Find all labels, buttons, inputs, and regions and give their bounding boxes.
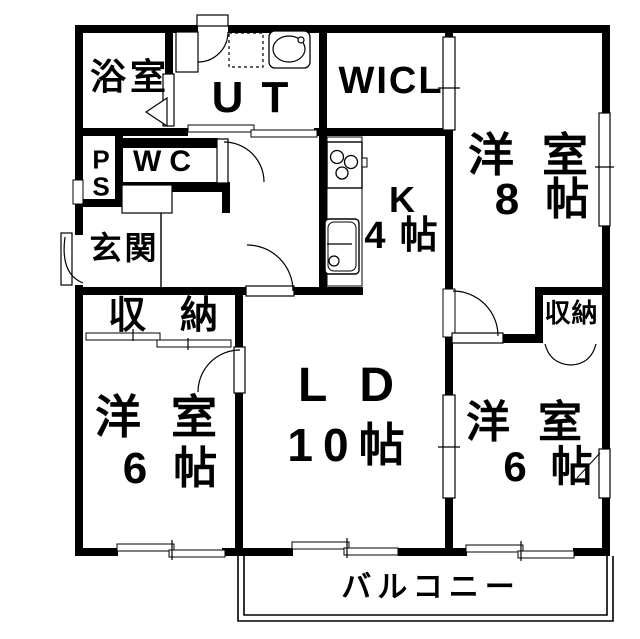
storage-right-label: 収納	[543, 300, 598, 326]
bedroom6-right-door	[452, 291, 503, 343]
bedroom6-left-door	[198, 347, 245, 393]
ps-meter-door	[73, 180, 83, 204]
pipe-space-label: PS	[90, 147, 112, 202]
living-dining-size: 10帖	[277, 422, 414, 468]
ld-alcove-opening	[443, 289, 455, 337]
wc-door	[217, 139, 264, 183]
ut-sliding-door	[188, 125, 317, 137]
shoe-cabinet	[122, 185, 172, 213]
utility-label: UT	[194, 76, 307, 120]
floor-plan: 浴室 UT WICL PS WC 玄関 K 4帖 洋室 8帖 LD 10帖 洋室…	[0, 0, 640, 639]
bedroom6-left-size: 6帖	[97, 447, 243, 491]
washing-machine-pan	[229, 33, 263, 67]
ut-door	[176, 15, 228, 72]
balcony-label: バルコニー	[335, 573, 520, 603]
kitchen-size: 4帖	[350, 217, 451, 255]
hall-ld-door	[246, 245, 294, 296]
bedroom6-right-size: 6帖	[479, 446, 616, 488]
wc-label: WC	[125, 147, 199, 177]
ld-window	[292, 538, 398, 558]
bathroom-label: 浴室	[86, 59, 170, 95]
bedroom6-right-label: 洋室	[438, 401, 610, 445]
storage-left-label: 収納	[74, 297, 252, 335]
entrance-label: 玄関	[86, 232, 159, 264]
bedroom8-label: 洋室	[440, 132, 616, 178]
bedroom6-left-label: 洋室	[65, 394, 247, 440]
living-dining-label: LD	[266, 362, 426, 410]
bedroom8-size: 8帖	[469, 178, 615, 222]
washbasin	[269, 31, 310, 68]
wicl-label: WICL	[336, 62, 443, 100]
bedroom6-left-window	[117, 540, 225, 560]
bedroom6-right-bottom-window	[466, 541, 574, 561]
entrance-door	[61, 233, 83, 285]
gas-stove-icon	[327, 142, 367, 188]
storage-right-bifold-doors	[545, 344, 596, 365]
kitchen-label: K	[389, 182, 415, 218]
